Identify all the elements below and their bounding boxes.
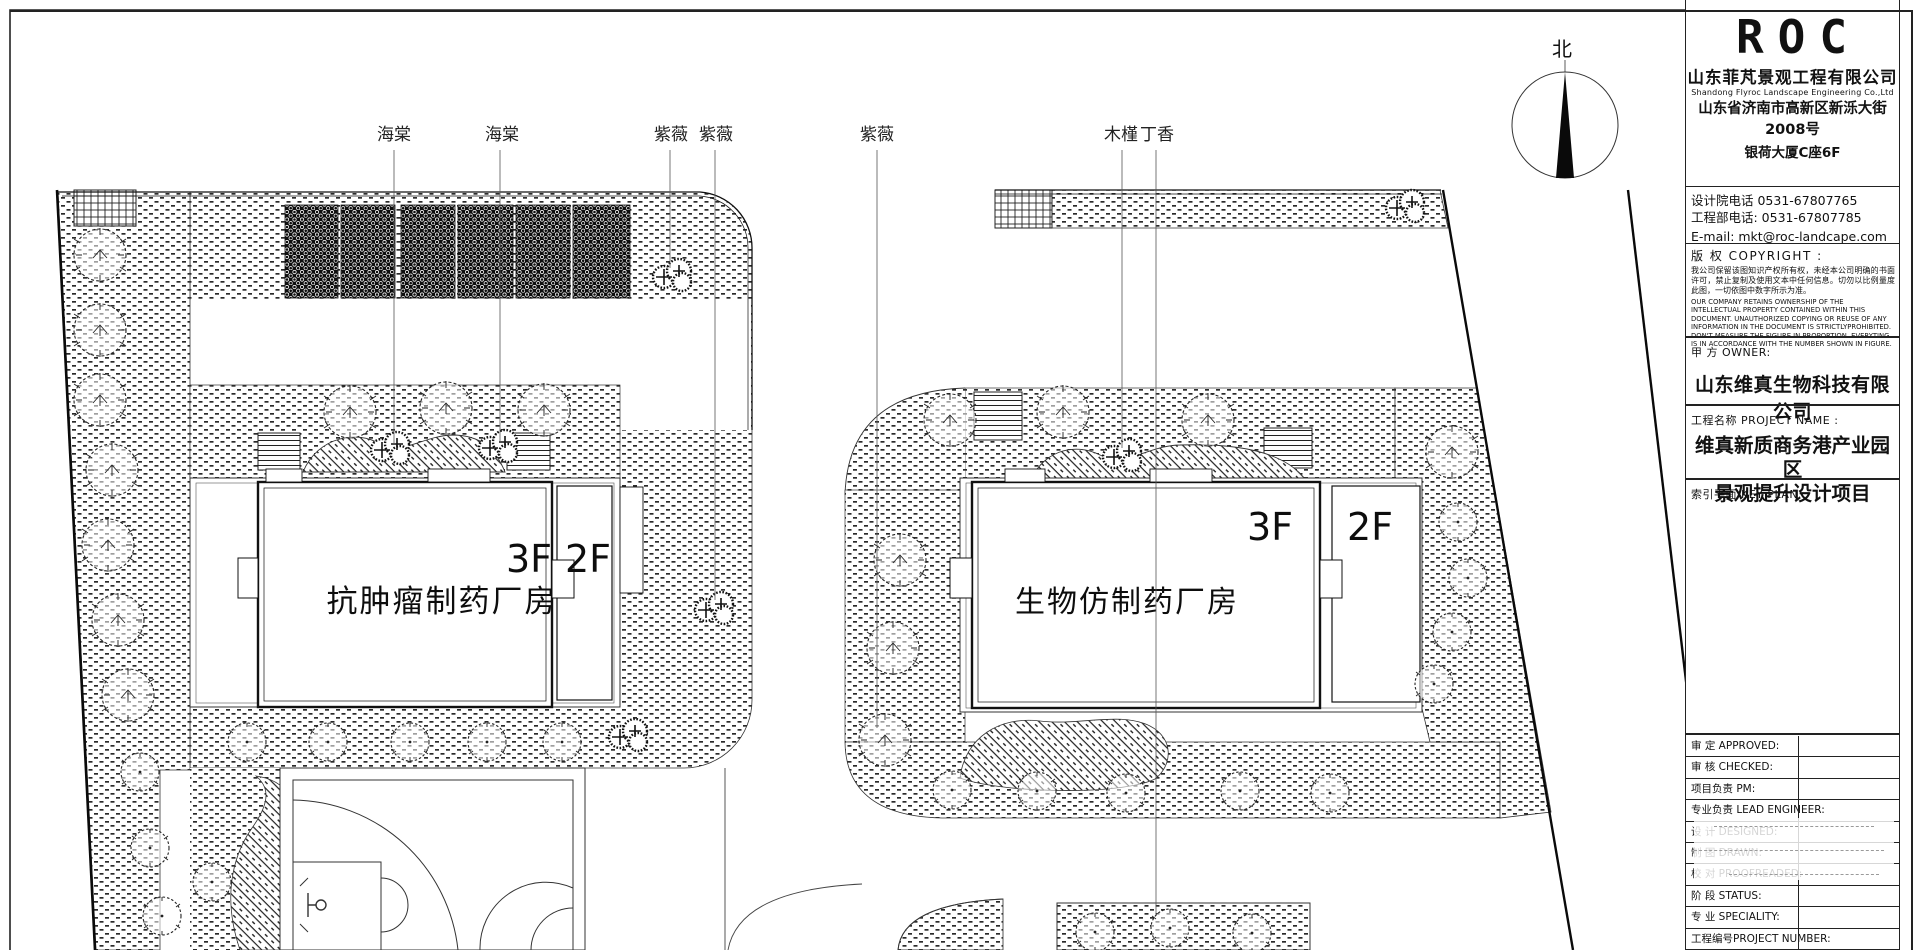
firm-name-en: Shandong Flyroc Landscape Engineering Co… [1686, 88, 1899, 97]
plant-label: 海棠 [485, 125, 519, 145]
contact-section: 设计院电话 0531-67807765 工程部电话: 0531-67807785… [1686, 192, 1899, 245]
keyplan-label: 索引平面 KEY PLAN : [1686, 482, 1899, 502]
site-plan: 抗肿瘤制药厂房 3F 2F [0, 0, 1688, 950]
table-row-speciality: 专 业 SPECIALITY: [1686, 907, 1899, 928]
keyplan-section: 索引平面 KEY PLAN : [1686, 482, 1899, 502]
table-row-checked: 审 核 CHECKED: [1686, 757, 1899, 778]
table-row-approved: 审 定 APPROVED: [1686, 736, 1899, 757]
watermark-overlay [1694, 818, 1894, 880]
firm-address-line2: 银荷大厦C座6F [1686, 141, 1899, 161]
title-block: ROC 山东菲芃景观工程有限公司 Shandong Flyroc Landsca… [1685, 0, 1900, 950]
sheet-edge-right [1911, 10, 1913, 950]
plant-label: 紫薇 [654, 125, 688, 145]
building-right: 生物仿制药厂房 3F 2F [950, 469, 1422, 712]
plant-label: 丁香 [1140, 125, 1174, 145]
building-right-floors-main: 3F [1247, 505, 1293, 549]
plant-label: 紫薇 [860, 125, 894, 145]
building-left: 抗肿瘤制药厂房 3F 2F [190, 469, 643, 707]
phone-engineering: 工程部电话: 0531-67807785 [1691, 209, 1899, 226]
building-left-name: 抗肿瘤制药厂房 [327, 584, 558, 620]
basketball-court [280, 768, 585, 950]
building-right-floors-wing: 2F [1347, 505, 1393, 549]
project-label: 工程名称 PROJECT NAME : [1686, 408, 1899, 428]
copyright-section: 版 权 COPYRIGHT : 我公司保留该图知识产权所有权，未经本公司明确的书… [1686, 247, 1899, 348]
sheet-edge-top [10, 10, 1913, 12]
north-label: 北 [1552, 37, 1572, 61]
building-left-floors-wing: 2F [565, 537, 611, 581]
drawing-sheet: 抗肿瘤制药厂房 3F 2F [0, 0, 1920, 950]
plant-label: 紫薇 [699, 125, 733, 145]
phone-design: 设计院电话 0531-67807765 [1691, 192, 1899, 209]
table-row-status: 阶 段 STATUS: [1686, 886, 1899, 907]
copyright-title: 版 权 COPYRIGHT : [1686, 247, 1899, 264]
table-row-project-number: 工程编号PROJECT NUMBER: [1686, 929, 1899, 950]
firm-address-line1: 山东省济南市高新区新泺大街2008号 [1686, 97, 1899, 139]
building-right-name: 生物仿制药厂房 [1015, 585, 1239, 620]
copyright-text-cn: 我公司保留该图知识产权所有权，未经本公司明确的书面许可，禁止复制及使用文本中任何… [1686, 264, 1899, 296]
plant-label: 木槿 [1104, 125, 1138, 145]
project-name-line1: 维真新质商务港产业园区 [1686, 434, 1899, 482]
owner-label: 甲 方 OWNER: [1686, 340, 1899, 360]
building-left-floors-main: 3F [506, 537, 552, 581]
plant-label: 海棠 [377, 125, 411, 145]
table-row-pm: 项目负责 PM: [1686, 779, 1899, 800]
firm-section: ROC 山东菲芃景观工程有限公司 Shandong Flyroc Landsca… [1686, 10, 1899, 161]
firm-name-cn: 山东菲芃景观工程有限公司 [1686, 64, 1899, 88]
firm-logo: ROC [1686, 10, 1899, 64]
